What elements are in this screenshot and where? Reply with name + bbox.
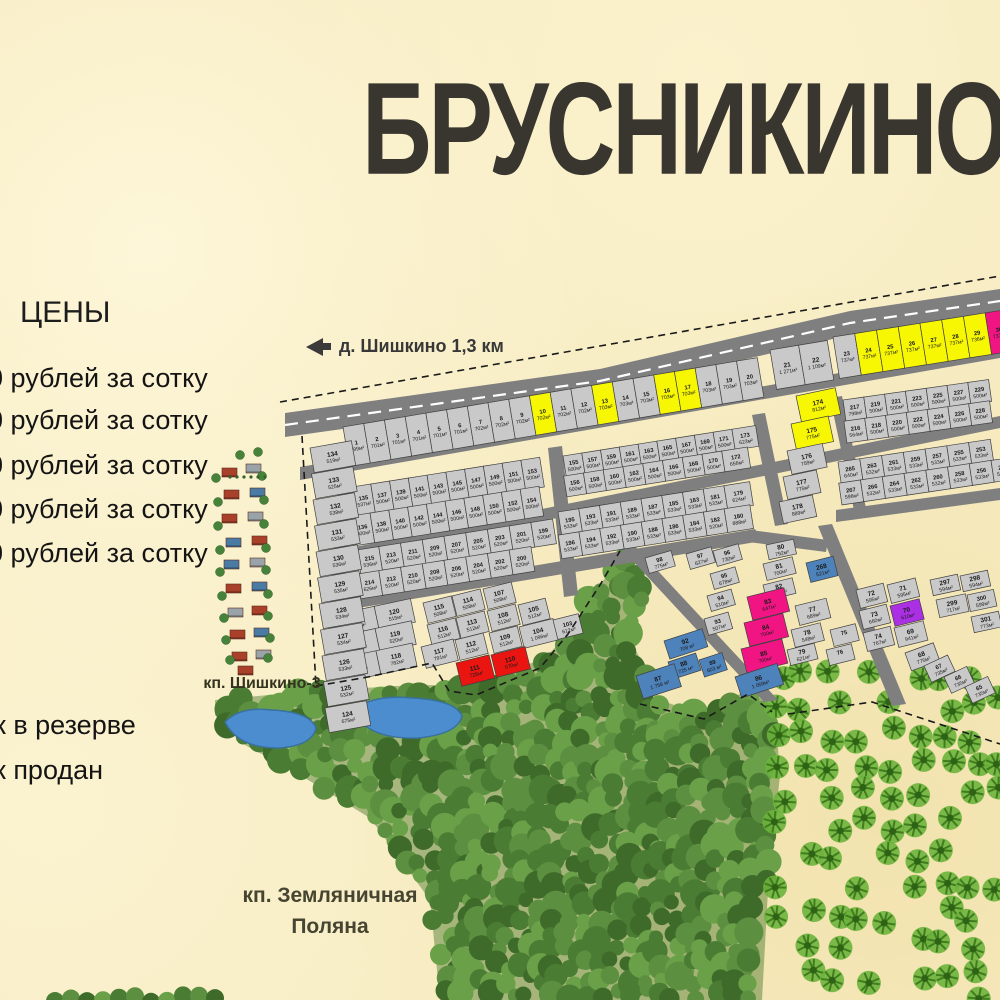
plot-cell-192: 192533м² — [600, 525, 624, 552]
plot-cell-79: 79621м² — [787, 643, 818, 665]
settlement-title: БРУСНИКИНО — [362, 54, 1000, 205]
plot-cell-94: 94510м² — [707, 589, 735, 611]
plot-cell-217: 217798м² — [843, 397, 867, 422]
plot-cell-228: 228500м² — [969, 401, 993, 426]
palm-grove — [762, 659, 1000, 1000]
plot-cell-220: 220500м² — [885, 412, 909, 437]
plot-cell-162: 162500м² — [623, 464, 646, 488]
plot-cell-196: 196533м² — [558, 532, 582, 559]
plot-cell-218: 218500м² — [865, 415, 889, 440]
plot-cell-219: 219500м² — [864, 394, 888, 419]
village-illustration — [212, 448, 275, 676]
left-arrow-icon — [306, 338, 323, 356]
plot-cell-93: 93507м² — [704, 612, 733, 635]
plot-cell-164: 164500м² — [643, 460, 666, 484]
plot-cell-95: 95678м² — [710, 567, 739, 590]
plot-cell-166: 166500м² — [662, 457, 685, 481]
price-line-5: 0 рублей за сотку — [0, 538, 208, 569]
plot-cell-260: 260532м² — [926, 467, 951, 492]
plot-cell-182: 182520м² — [703, 509, 727, 536]
plot-cell-298: 298594м² — [960, 570, 991, 591]
plot-cell-75: 75 — [830, 624, 859, 647]
plot-cell-221: 221500м² — [885, 391, 909, 416]
plot-cell-22: 221 109м² — [799, 340, 834, 384]
legend-item-reserved: к в резерве — [0, 710, 136, 741]
plot-cell-158: 158500м² — [583, 470, 606, 494]
plot-cell-299: 299717м² — [936, 594, 969, 618]
road-direction-label: д. Шишкино 1,3 км — [306, 336, 504, 357]
plot-cell-92: 92708 м² — [664, 629, 708, 659]
plot-cell-72: 72595м² — [856, 583, 888, 608]
plot-cell-300: 300599м² — [967, 589, 997, 611]
plot-cell-262: 262533м² — [904, 470, 929, 495]
plot-cell-212: 212520м² — [379, 567, 405, 595]
plot-cell-178: 178889м² — [779, 495, 817, 524]
plot-cell-156: 156500м² — [564, 473, 587, 497]
plot-cell-194: 194533м² — [579, 529, 603, 556]
plot-cell-267: 267596м² — [839, 480, 864, 505]
bottom-village-label: кп. Земляничная Поляна — [225, 880, 435, 942]
svg-text:737м²: 737м² — [993, 332, 1000, 340]
plot-cell-173: 173623м² — [732, 425, 759, 449]
plot-cell-78: 78548м² — [791, 623, 824, 648]
price-line-2: 0 рублей за сотку — [0, 405, 208, 436]
plot-cell-227: 227500м² — [947, 382, 971, 407]
plot-cell-177: 177775м² — [783, 470, 821, 500]
plot-cell-76: 76 — [826, 644, 855, 666]
plot-cell-172: 172656м² — [722, 447, 751, 472]
plot-cell-256: 256533м² — [969, 460, 994, 485]
plot-cell-168: 168500м² — [682, 454, 705, 478]
prices-heading: ЦЕНЫ — [20, 296, 110, 330]
plot-cell-190: 190533м² — [620, 522, 644, 549]
plot-cell-204: 204520м² — [466, 553, 492, 581]
plot-cell-174: 174812м² — [796, 388, 841, 423]
plot-cell-202: 202520м² — [487, 550, 513, 578]
plot-cell-200: 200520м² — [509, 547, 535, 575]
plot-cell-224: 224500м² — [927, 407, 951, 432]
plot-cell-77: 77689м² — [795, 598, 831, 625]
plot-cell-229: 229500м² — [968, 380, 992, 405]
plot-cell-180: 180888м² — [724, 505, 753, 533]
plot-cell-184: 184533м² — [683, 512, 707, 539]
plot-cell-268: 268521м² — [806, 556, 838, 582]
plot-cell-89: 89603 м² — [699, 653, 727, 678]
plot-cell-301: 301773м² — [971, 611, 1000, 632]
genplan-poster: 1699м²2701м²3701м²4701м²5701м²6701м²7702… — [0, 0, 1000, 1000]
plot-cell-81: 81700м² — [763, 557, 796, 581]
neighbor-village-label: кп. Шишкино-3 — [192, 675, 332, 693]
plot-cell-258: 258533м² — [947, 464, 972, 489]
plot-cell-297: 297594м² — [930, 574, 961, 595]
plot-cell-186: 186533м² — [662, 515, 686, 542]
price-line-1: 0 рублей за сотку — [0, 363, 208, 394]
plot-cell-160: 160500м² — [603, 467, 626, 491]
plot-cell-223: 223500м² — [905, 388, 929, 413]
plot-cell-170: 170500м² — [702, 451, 725, 475]
plot-cell-176: 176759м² — [787, 444, 827, 475]
plot-cell-206: 206520м² — [444, 557, 470, 585]
plot-cell-210: 210520м² — [400, 564, 426, 592]
plot-cell-175: 175775м² — [791, 416, 834, 449]
plot-cell-216: 216564м² — [844, 418, 868, 443]
plot-cell-199: 199520м² — [531, 519, 557, 547]
price-line-3: 0 рублей за сотку — [0, 450, 208, 481]
plot-cell-264: 264533м² — [882, 473, 907, 498]
left-arrow-icon-bar — [322, 343, 331, 350]
plot-cell-225: 225500м² — [926, 385, 950, 410]
plot-cell-208: 208520м² — [422, 560, 448, 588]
plot-cell-222: 222500м² — [906, 410, 930, 435]
plot-cell-188: 188533м² — [641, 519, 665, 546]
plot-cell-266: 266532м² — [860, 477, 885, 502]
price-line-4: 0 рублей за сотку — [0, 494, 208, 525]
legend-item-sold: к продан — [0, 755, 103, 786]
plot-cell-226: 226500м² — [948, 404, 972, 429]
